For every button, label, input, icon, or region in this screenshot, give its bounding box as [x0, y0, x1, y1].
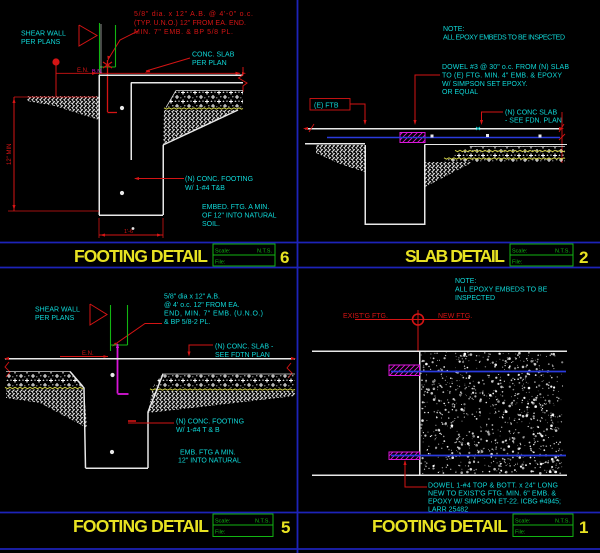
- svg-text:SHEAR WALL: SHEAR WALL: [35, 307, 80, 314]
- svg-text:Scale:: Scale:: [512, 249, 528, 255]
- svg-text:@ 4' o.c. 12" FROM EA.: @ 4' o.c. 12" FROM EA.: [164, 302, 240, 309]
- svg-text:EMBED. FTG. A MIN.: EMBED. FTG. A MIN.: [202, 204, 269, 211]
- svg-text:W/ SIMPSON SET EPOXY.: W/ SIMPSON SET EPOXY.: [442, 81, 527, 88]
- svg-text:NOTE:: NOTE:: [443, 26, 464, 33]
- svg-text:END, MIN. 7" EMB. (U.N.O.): END, MIN. 7" EMB. (U.N.O.): [164, 311, 263, 318]
- svg-text:File:: File:: [515, 530, 526, 536]
- svg-text:SEE FDTN PLAN: SEE FDTN PLAN: [215, 352, 270, 359]
- svg-text:& BP 5/8-2 PL.: & BP 5/8-2 PL.: [164, 319, 210, 326]
- svg-text:(E) FTB: (E) FTB: [314, 103, 339, 110]
- svg-text:EPOXY W/ SIMPSON ET-22. ICBG: EPOXY W/ SIMPSON ET-22. ICBG #4945;: [428, 499, 561, 506]
- svg-text:NOTE:: NOTE:: [455, 278, 476, 285]
- svg-text:INSPECTED: INSPECTED: [455, 295, 495, 302]
- svg-text:W/ 1-#4 T&B: W/ 1-#4 T&B: [185, 185, 225, 192]
- svg-text:SLAB DETAIL: SLAB DETAIL: [405, 246, 505, 266]
- svg-text:(N) CONC. FOOTING: (N) CONC. FOOTING: [185, 176, 253, 183]
- svg-text:N.T.S.: N.T.S.: [555, 519, 570, 525]
- svg-text:ALL EPOXY EMBEDS TO BE: ALL EPOXY EMBEDS TO BE: [455, 287, 548, 294]
- svg-text:1: 1: [579, 518, 588, 537]
- svg-text:12" MIN: 12" MIN: [7, 144, 13, 165]
- svg-text:FOOTING DETAIL: FOOTING DETAIL: [73, 516, 209, 536]
- svg-text:5/8" dia x 12" A.B.: 5/8" dia x 12" A.B.: [164, 294, 220, 301]
- svg-text:FOOTING DETAIL: FOOTING DETAIL: [372, 516, 508, 536]
- svg-text:CONC. SLAB: CONC. SLAB: [192, 52, 235, 59]
- svg-text:Scale:: Scale:: [215, 249, 231, 255]
- svg-text:(N) CONC. FOOTING: (N) CONC. FOOTING: [176, 419, 244, 426]
- svg-text:FOOTING DETAIL: FOOTING DETAIL: [74, 246, 208, 266]
- svg-text:5: 5: [281, 518, 290, 537]
- svg-text:PER PLAN: PER PLAN: [192, 60, 227, 67]
- svg-text:PER PLANS: PER PLANS: [21, 39, 61, 46]
- svg-text:File:: File:: [215, 530, 226, 536]
- svg-text:Scale:: Scale:: [515, 519, 531, 525]
- svg-text:TO (E) FTG. MIN. 4" EMB. & EPO: TO (E) FTG. MIN. 4" EMB. & EPOXY: [442, 73, 562, 80]
- svg-text:1'-6: 1'-6: [124, 229, 133, 235]
- svg-text:DOWEL #3 @ 30" o.c. FROM (N) S: DOWEL #3 @ 30" o.c. FROM (N) SLAB: [442, 64, 569, 71]
- svg-text:File:: File:: [215, 260, 226, 266]
- svg-text:W/ 1-#4 T & B: W/ 1-#4 T & B: [176, 427, 220, 434]
- svg-text:MIN. 7" EMB. & BP 5/8 PL.: MIN. 7" EMB. & BP 5/8 PL.: [134, 29, 233, 36]
- svg-text:N.T.S.: N.T.S.: [555, 249, 570, 255]
- svg-text:EXIST'G FTG.: EXIST'G FTG.: [343, 313, 388, 320]
- svg-text:(N) CONC. SLAB -: (N) CONC. SLAB -: [215, 344, 274, 351]
- svg-text:6: 6: [280, 248, 289, 267]
- svg-text:SOIL.: SOIL.: [202, 221, 220, 228]
- svg-text:NEW FTG.: NEW FTG.: [438, 313, 472, 320]
- svg-text:12" INTO NATURAL: 12" INTO NATURAL: [178, 458, 241, 465]
- svg-text:N.T.S.: N.T.S.: [257, 249, 272, 255]
- svg-text:OF 12" INTO NATURAL: OF 12" INTO NATURAL: [202, 213, 277, 220]
- svg-text:NEW TO EXIST'G FTG. MIN. 6" E: NEW TO EXIST'G FTG. MIN. 6" EMB. &: [428, 491, 556, 498]
- svg-text:SHEAR WALL: SHEAR WALL: [21, 31, 66, 38]
- svg-text:5/8" dia. x 12" A.B. @ 4'-0" o: 5/8" dia. x 12" A.B. @ 4'-0" o.c.: [134, 11, 253, 18]
- svg-text:OR EQUAL: OR EQUAL: [442, 89, 478, 96]
- svg-text:(N) CONC SLAB: (N) CONC SLAB: [505, 110, 557, 117]
- svg-text:E.N.: E.N.: [77, 68, 89, 74]
- svg-text:N.T.S.: N.T.S.: [255, 519, 270, 525]
- svg-text:2: 2: [579, 248, 588, 267]
- svg-text:(TYP. U.N.O.) 12" FROM EA. END: (TYP. U.N.O.) 12" FROM EA. END.: [134, 20, 246, 27]
- svg-text:LARR 25482: LARR 25482: [428, 507, 468, 514]
- svg-text:PER PLANS: PER PLANS: [35, 315, 75, 322]
- svg-text:EMB. FTG A MIN.: EMB. FTG A MIN.: [180, 450, 236, 457]
- svg-text:- SEE FDN. PLAN: - SEE FDN. PLAN: [505, 118, 562, 125]
- svg-text:DOWEL 1-#4 TOP & BOTT. x 24" L: DOWEL 1-#4 TOP & BOTT. x 24" LONG: [428, 483, 558, 490]
- svg-text:Scale:: Scale:: [215, 519, 231, 525]
- svg-text:File:: File:: [512, 260, 523, 266]
- svg-text:ALL EPOXY EMBEDS TO BE INSPECT: ALL EPOXY EMBEDS TO BE INSPECTED: [443, 35, 565, 42]
